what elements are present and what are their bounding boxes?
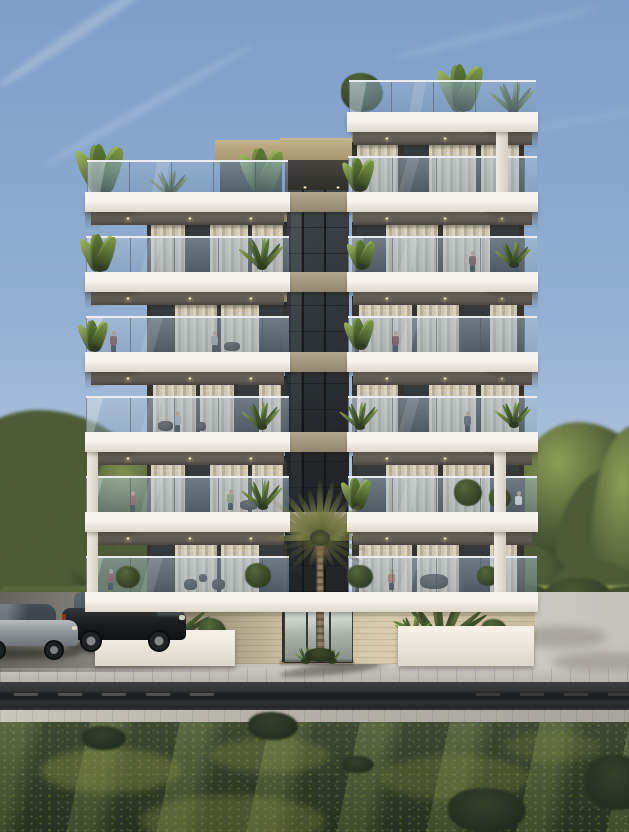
plant-base xyxy=(357,264,367,270)
plant-agave xyxy=(249,480,277,508)
plant-base xyxy=(258,504,268,510)
balcony-slab-band xyxy=(347,352,538,372)
ceiling-downlight xyxy=(249,377,253,380)
plant-agave xyxy=(502,402,526,426)
bush-foliage xyxy=(347,565,372,588)
ceiling-downlight xyxy=(385,457,389,460)
plant-base xyxy=(509,422,519,428)
plant-bush xyxy=(242,556,274,588)
plant-base xyxy=(257,424,267,430)
planter-right xyxy=(398,626,534,666)
ground-canopy-band xyxy=(85,592,538,612)
ceiling-downlight xyxy=(188,297,192,300)
connector-spandrel xyxy=(283,432,351,452)
plant-banana xyxy=(344,158,376,190)
bush-foliage xyxy=(245,563,272,588)
plant-banana xyxy=(80,320,110,350)
lawn-flower-patch xyxy=(40,748,180,793)
balcony-glass-railing xyxy=(348,556,537,595)
plant-bush xyxy=(114,560,142,588)
plant-bush xyxy=(345,558,375,588)
lawn-dark-tuft xyxy=(342,756,374,773)
ceiling-downlight xyxy=(126,377,130,380)
road-lane-dash xyxy=(564,693,588,696)
bush-foliage xyxy=(454,479,483,506)
road-lane-dash xyxy=(58,693,82,696)
ceiling-downlight xyxy=(188,457,192,460)
sedan-front-wheel xyxy=(44,640,64,660)
plant-agave xyxy=(502,242,526,266)
ceiling-downlight xyxy=(126,457,130,460)
ceiling-downlight xyxy=(249,217,253,220)
lawn-dark-tuft xyxy=(82,726,126,750)
balcony-glass-railing xyxy=(348,316,537,355)
connector-spandrel xyxy=(283,192,351,212)
road-lane-dash xyxy=(190,693,214,696)
ceiling-downlight xyxy=(249,457,253,460)
sedan-body xyxy=(0,620,78,646)
architectural-render-scene xyxy=(0,0,629,832)
plant-base xyxy=(355,424,365,430)
plant-banana xyxy=(348,240,376,268)
ceiling-downlight xyxy=(249,297,253,300)
ceiling-downlight xyxy=(126,537,130,540)
balcony-slab-band xyxy=(85,432,290,452)
ceiling-downlight xyxy=(443,137,447,140)
palm-base-tuft xyxy=(305,648,335,662)
balcony-slab-band xyxy=(347,272,538,292)
plant-base xyxy=(509,262,519,268)
right-tower-roof-balustrade xyxy=(349,80,536,114)
ceiling-downlight xyxy=(443,217,447,220)
ceiling-downlight xyxy=(443,297,447,300)
ceiling-downlight xyxy=(443,537,447,540)
ceiling-downlight xyxy=(336,186,340,189)
bush-foliage xyxy=(116,566,140,588)
ceiling-downlight xyxy=(126,297,130,300)
sedan-silver xyxy=(0,602,80,664)
ceiling-downlight xyxy=(188,377,192,380)
ceiling-downlight xyxy=(249,537,253,540)
road-lane-dash xyxy=(520,693,544,696)
plant-bush xyxy=(451,472,485,506)
suv-rear-wheel xyxy=(80,630,102,652)
road-lane-dash xyxy=(608,693,629,696)
balcony-slab-band xyxy=(347,192,538,212)
ceiling-downlight xyxy=(303,186,307,189)
plant-base xyxy=(257,264,267,270)
balcony-glass-railing xyxy=(348,156,537,195)
plant-base xyxy=(356,344,366,350)
balcony-slab-band xyxy=(85,512,290,532)
balcony-slab-band xyxy=(85,192,290,212)
plant-agave xyxy=(247,238,277,268)
balcony-glass-railing xyxy=(86,316,289,355)
left-tower-roof-balustrade xyxy=(87,160,288,194)
road-lane-dash xyxy=(476,693,500,696)
ceiling-downlight xyxy=(385,537,389,540)
suv-front-wheel xyxy=(148,630,170,652)
plant-agave xyxy=(249,402,275,428)
balcony-slab-band xyxy=(347,112,538,132)
ceiling-downlight xyxy=(385,217,389,220)
lawn-flower-patch xyxy=(505,732,600,762)
plant-banana xyxy=(82,234,118,270)
suv-headlight xyxy=(179,615,185,620)
road-lane-dash xyxy=(14,693,38,696)
ceiling-downlight xyxy=(188,217,192,220)
connector-spandrel xyxy=(283,272,351,292)
plant-banana xyxy=(346,318,376,348)
ceiling-downlight xyxy=(385,297,389,300)
connector-parapet xyxy=(280,138,354,162)
balcony-slab-band xyxy=(85,272,290,292)
corner-column xyxy=(496,132,508,192)
connector-spandrel xyxy=(283,352,351,372)
palm-crown-core xyxy=(310,530,330,546)
balcony-slab-band xyxy=(347,432,538,452)
lawn-dark-tuft xyxy=(248,712,298,740)
lawn-flower-patch xyxy=(210,738,330,773)
ceiling-downlight xyxy=(443,457,447,460)
balcony-slab-band xyxy=(85,352,290,372)
ceiling-downlight xyxy=(443,377,447,380)
sedan-headlight xyxy=(72,626,77,630)
road-lane-dash xyxy=(146,693,170,696)
ceiling-downlight xyxy=(126,217,130,220)
asphalt-road xyxy=(0,682,629,710)
balcony-slab-band xyxy=(347,512,538,532)
ceiling-downlight xyxy=(385,377,389,380)
ceiling-downlight xyxy=(188,537,192,540)
ceiling-downlight xyxy=(385,137,389,140)
plant-agave xyxy=(347,402,373,428)
road-lane-dash xyxy=(102,693,126,696)
lawn-dark-tuft xyxy=(448,788,526,832)
